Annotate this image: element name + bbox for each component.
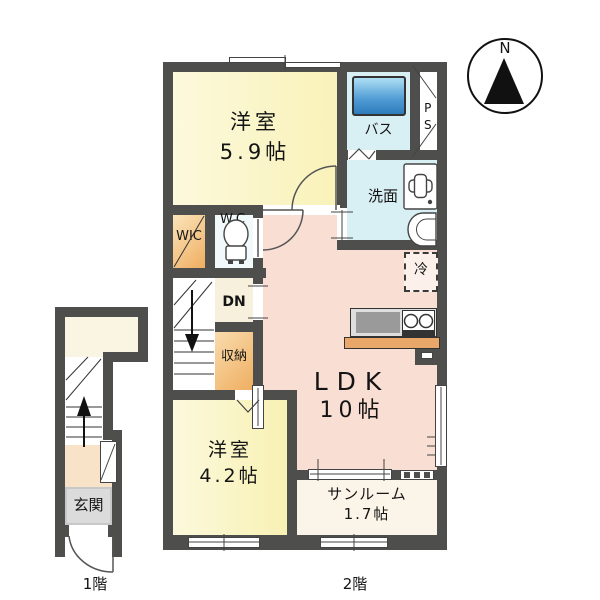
door-opening-senmen-slider (337, 208, 347, 240)
wall-shuno-top (215, 322, 253, 332)
window-room59-top-b (285, 62, 341, 68)
kitchen-sink-top (356, 312, 400, 333)
wall-1f-bottom-right (108, 525, 122, 537)
room-label-ldk-name: LDK (282, 368, 422, 397)
compass-north-label: N (490, 40, 520, 57)
wall-senmen-bottom (337, 240, 447, 250)
window-sunroom-top (308, 469, 392, 480)
room-label-ps: PS (420, 90, 437, 146)
wall-1f-bottom-left (55, 525, 69, 537)
room-label-western42-name: 洋室 (173, 440, 287, 462)
compass-needle-icon (484, 58, 524, 104)
louver-slat (424, 472, 430, 478)
bathtub (352, 76, 406, 116)
kitchen-counter-bar (344, 337, 440, 349)
door-opening-bath-fold (348, 150, 376, 160)
wall-2f-right (437, 62, 447, 550)
wall-wc-bottom (163, 268, 266, 278)
door-opening-wc (253, 218, 263, 258)
floor-label-2f: 2階 (325, 576, 385, 593)
louver-slat (404, 472, 410, 478)
louver-slat (414, 472, 420, 478)
kitchen-stove-grill (403, 330, 434, 335)
shoe-cabinet (100, 441, 117, 483)
room-label-refrigerator: 冷 (404, 262, 438, 278)
window-sunroom-bottom (320, 537, 388, 548)
room-fill-western-5-9 (173, 72, 337, 205)
floor-plan-canvas: N 洋室 5.9帖 バス PS 洗面 WIC WC DN 収納 冷 LDK 10… (0, 0, 600, 600)
wall-1f-left (55, 307, 65, 557)
passage-opening-hall-ldk (253, 284, 263, 320)
room-label-sunroom-size: 1.7帖 (297, 506, 437, 523)
room-label-bath: バス (347, 122, 410, 138)
sliding-door-room42 (252, 385, 264, 429)
kitchen-side-handle (421, 352, 433, 359)
room-label-shuno: 収納 (211, 350, 257, 365)
room-label-wic: WIC (171, 230, 207, 245)
room-fill-stairs-2f (173, 278, 215, 390)
room-fill-1f-upper-hall (65, 317, 138, 357)
window-room59-top-a (229, 57, 286, 63)
room-label-western42-size: 4.2帖 (168, 466, 292, 488)
wall-room42-top (163, 390, 297, 400)
entrance-door-swing (69, 536, 113, 572)
room-fill-1f-stairs (65, 357, 103, 445)
room-label-sunroom-name: サンルーム (297, 486, 437, 503)
window-ldk-right (435, 385, 447, 467)
window-room42-bottom (188, 537, 260, 548)
room-label-ldk-size: 10帖 (282, 398, 422, 423)
room-label-western59-size: 5.9帖 (185, 140, 325, 164)
floor-label-1f: 1階 (65, 576, 125, 593)
room-label-wc: WC (215, 213, 253, 228)
wall-ps-left (410, 62, 420, 160)
room-label-dn: DN (214, 294, 254, 310)
wall-1f-top (55, 307, 148, 317)
wall-1f-right-mid (103, 352, 113, 440)
door-opening-hall (263, 205, 340, 215)
room-label-western59-name: 洋室 (195, 110, 315, 134)
room-label-genkan: 玄関 (63, 497, 114, 514)
room-label-senmen: 洗面 (347, 188, 419, 205)
